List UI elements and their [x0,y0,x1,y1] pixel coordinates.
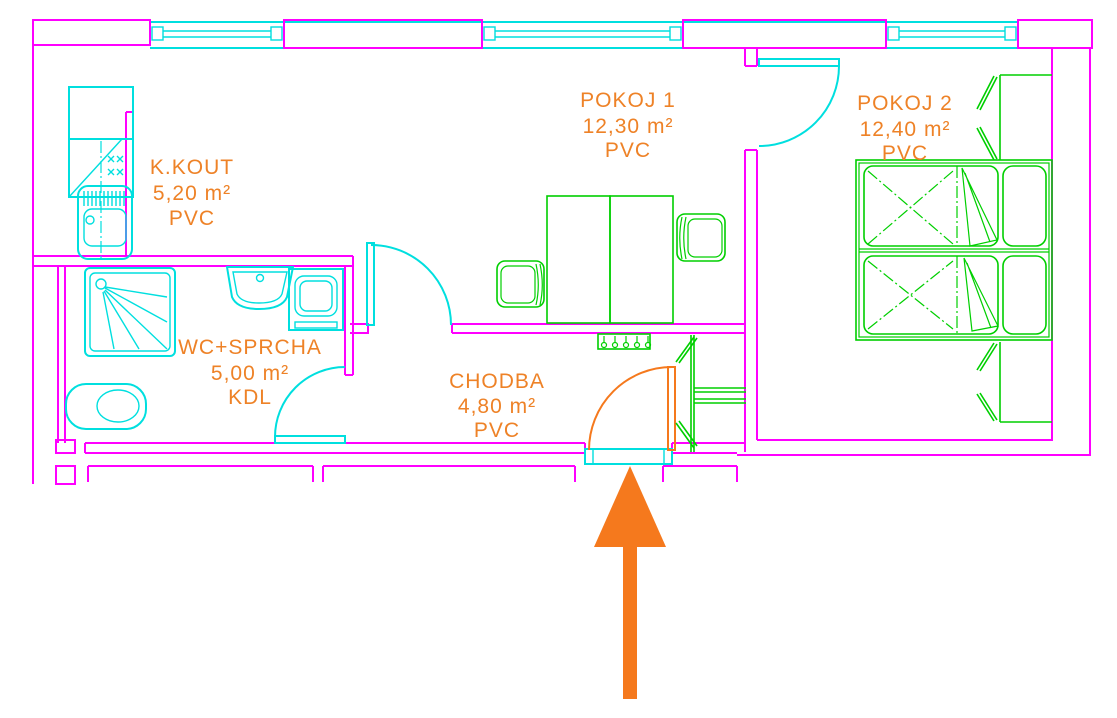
washbasin [227,267,293,309]
room-area: 5,20 m² [153,182,231,205]
wall-pier [683,20,886,48]
chair [497,261,544,307]
desk [547,196,610,323]
room-floor: PVC [169,207,215,230]
room-label-wc: WC+SPRCHA 5,00 m² KDL [178,336,322,409]
arrow-head [594,466,666,547]
coat-rack [598,334,651,349]
room-area: 4,80 m² [458,395,536,418]
wall-pier [284,20,482,48]
pokoj1-furniture [497,196,725,323]
window [484,27,681,40]
room-floor: PVC [882,142,928,165]
mattress [864,256,998,334]
window [152,27,282,40]
floor-plan-drawing: K.KOUT 5,20 m² PVC POKOJ 1 12,30 m² PVC … [0,0,1117,718]
desk [610,196,673,323]
room-area: 5,00 m² [211,362,289,385]
blanket [964,258,998,331]
room-name: WC+SPRCHA [178,336,322,359]
door-kitchen-chodba [367,243,451,325]
blanket [962,168,997,246]
entrance-threshold [585,449,672,464]
room-area: 12,40 m² [860,118,951,141]
entrance-arrow [594,466,666,699]
mattress [864,166,998,246]
room-label-pokoj1: POKOJ 1 12,30 m² PVC [580,89,676,162]
room-floor: PVC [474,419,520,442]
kitchen-counter [69,87,133,259]
room-label-chodba: CHODBA 4,80 m² PVC [449,370,545,442]
wall-pier [1018,20,1092,48]
pillow [1003,256,1046,334]
chair [677,214,725,261]
room-label-pokoj2: POKOJ 2 12,40 m² PVC [857,92,953,165]
wardrobe [977,75,1052,160]
shower [85,268,175,356]
room-name: K.KOUT [150,156,234,179]
room-name: CHODBA [449,370,545,393]
room-name: POKOJ 2 [857,92,953,115]
room-area: 12,30 m² [583,115,674,138]
entrance-door [589,367,675,450]
room-floor: PVC [605,139,651,162]
room-name: POKOJ 1 [580,89,676,112]
chodba-furniture [598,334,746,452]
toilet [66,384,146,429]
window [888,27,1016,40]
doors [275,59,839,464]
room-label-kkout: K.KOUT 5,20 m² PVC [150,156,234,230]
washing-machine [289,269,343,330]
floor-plan: K.KOUT 5,20 m² PVC POKOJ 1 12,30 m² PVC … [0,0,1117,718]
window-band [150,22,1020,48]
pillow [1003,166,1046,246]
bed [856,160,1052,340]
door-pokoj1-pokoj2 [759,59,839,146]
wardrobe [977,342,1052,422]
arrow-stem [623,547,637,699]
room-floor: KDL [228,386,272,409]
hall-closet [676,335,746,452]
wall-pier [56,466,75,484]
fridge-cabinet [69,87,133,139]
